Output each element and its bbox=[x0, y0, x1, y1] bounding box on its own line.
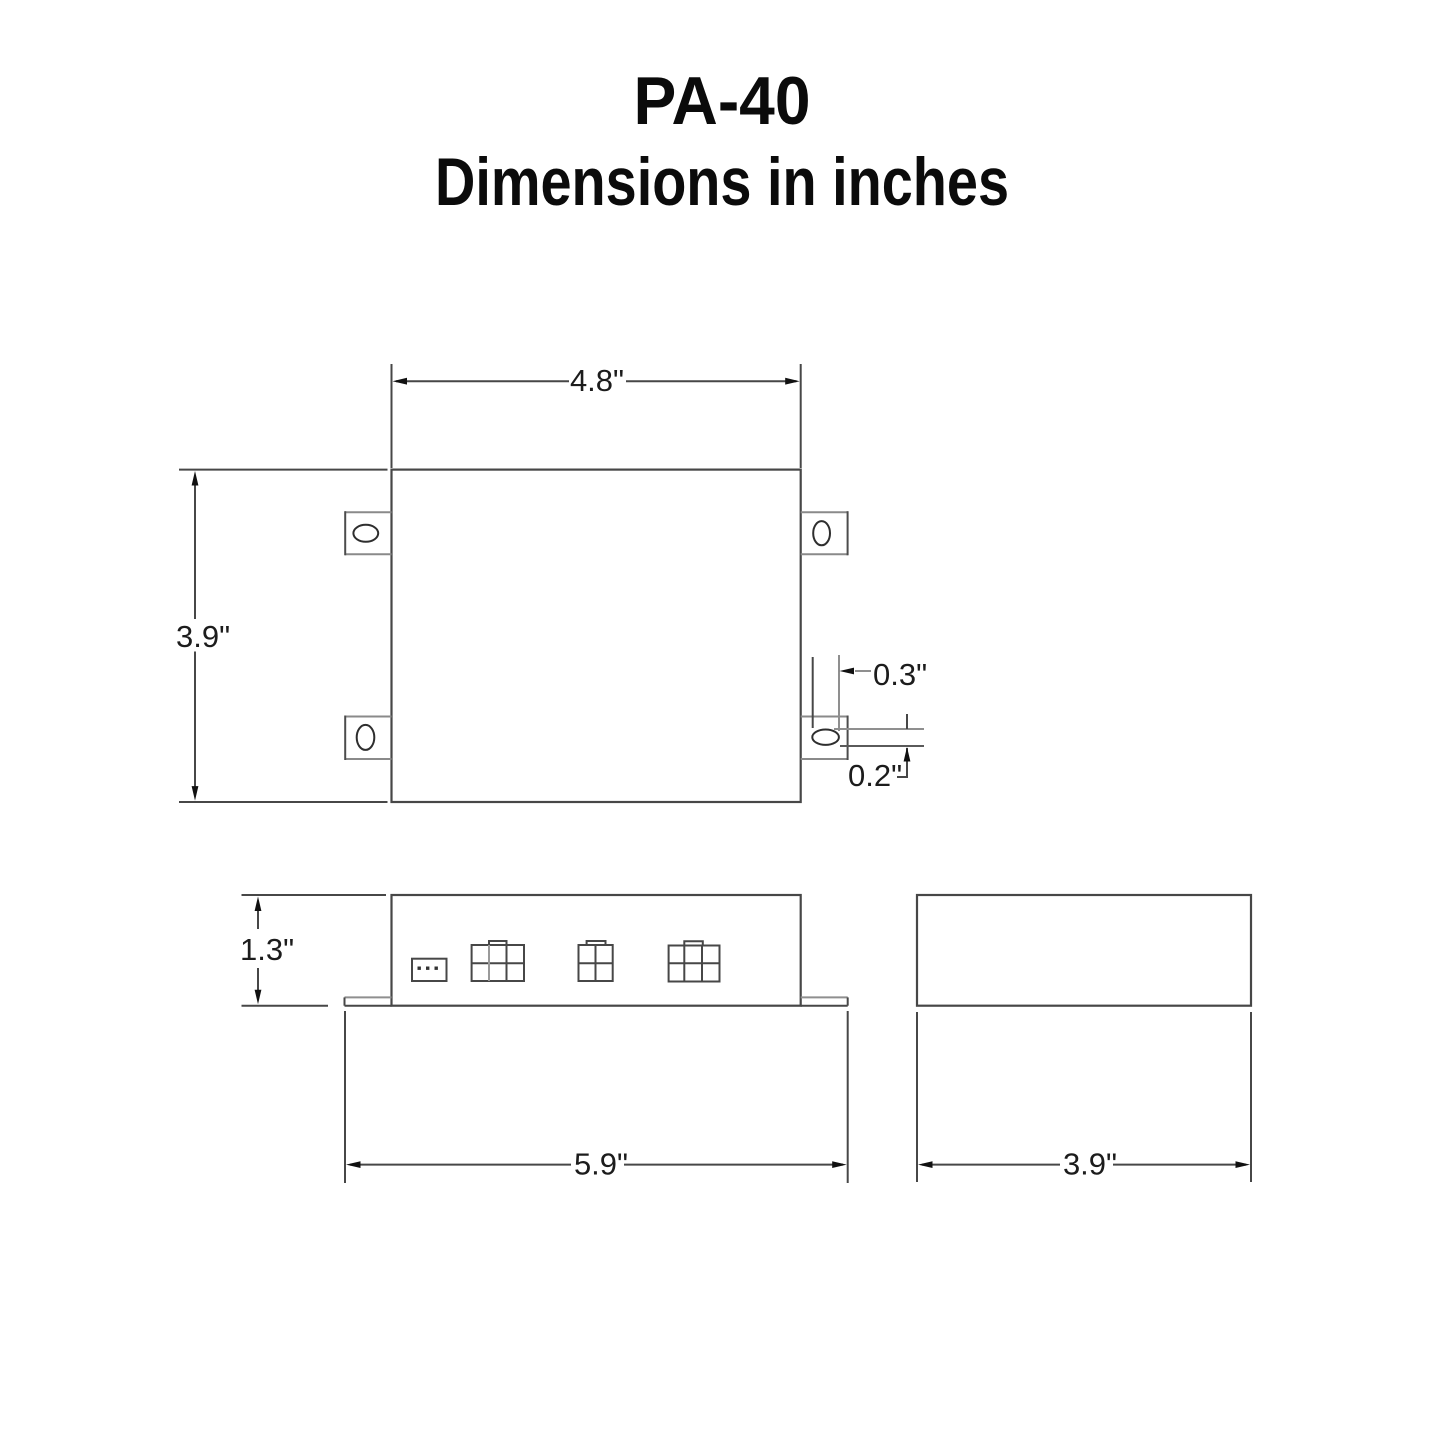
svg-text:PA-40: PA-40 bbox=[634, 63, 811, 139]
svg-text:3.9": 3.9" bbox=[176, 619, 230, 654]
svg-text:1.3": 1.3" bbox=[240, 932, 294, 967]
svg-text:5.9": 5.9" bbox=[574, 1147, 628, 1182]
svg-text:0.3": 0.3" bbox=[873, 657, 927, 692]
svg-text:Dimensions in inches: Dimensions in inches bbox=[435, 144, 1009, 220]
svg-text:3.9": 3.9" bbox=[1063, 1147, 1117, 1182]
svg-text:4.8": 4.8" bbox=[570, 363, 624, 398]
svg-text:0.2": 0.2" bbox=[848, 758, 902, 793]
